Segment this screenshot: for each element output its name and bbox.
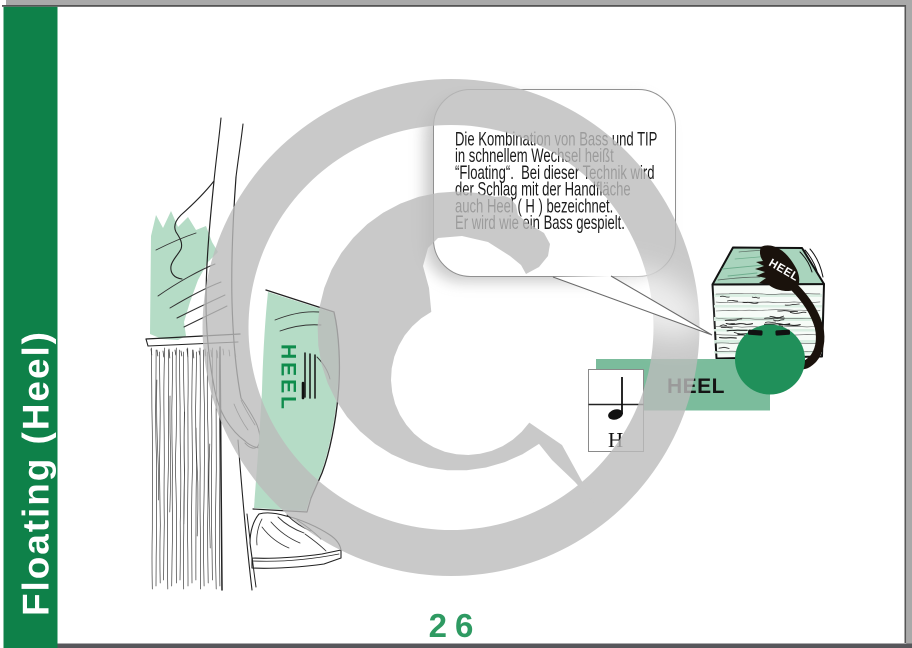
svg-text:26: 26 [429,607,482,644]
svg-text:HEEL: HEEL [277,344,300,410]
svg-text:Floating (Heel): Floating (Heel) [16,332,57,616]
